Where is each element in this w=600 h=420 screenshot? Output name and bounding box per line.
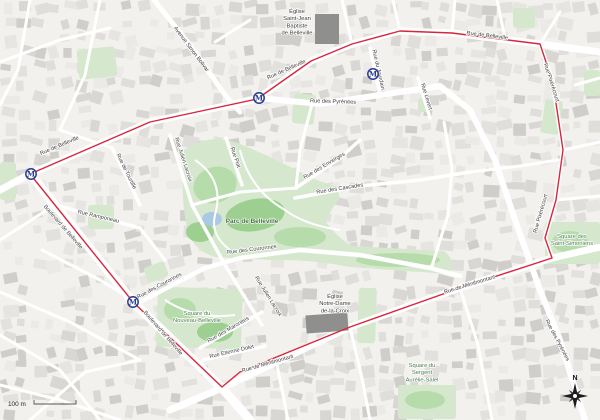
building-block bbox=[153, 210, 169, 222]
building-block bbox=[18, 110, 30, 121]
building-block bbox=[255, 135, 265, 143]
building-block bbox=[484, 242, 492, 250]
building-block bbox=[482, 331, 496, 339]
building-block bbox=[513, 123, 526, 135]
building-block bbox=[140, 60, 152, 73]
building-block bbox=[345, 105, 355, 115]
building-block bbox=[256, 405, 268, 416]
building-block bbox=[275, 285, 286, 293]
building-block bbox=[288, 289, 304, 302]
building-block bbox=[46, 77, 56, 87]
building-block bbox=[108, 332, 118, 342]
building-block bbox=[513, 379, 521, 387]
building-block bbox=[150, 135, 159, 145]
building-block bbox=[170, 94, 183, 104]
building-block bbox=[47, 4, 59, 14]
building-block bbox=[77, 332, 88, 343]
church-building-saint-jean bbox=[315, 14, 339, 44]
building-block bbox=[15, 257, 23, 265]
building-block bbox=[256, 300, 264, 312]
poi-label-line: Église bbox=[327, 293, 343, 300]
poi-label-line: Saint-Simoniens bbox=[551, 241, 593, 247]
building-block bbox=[525, 215, 535, 225]
building-block bbox=[256, 4, 269, 14]
building-block bbox=[421, 330, 429, 338]
building-block bbox=[541, 275, 556, 288]
building-block bbox=[320, 410, 332, 420]
building-block bbox=[365, 152, 378, 165]
building-block bbox=[49, 120, 57, 131]
building-block bbox=[347, 211, 359, 219]
building-block bbox=[406, 152, 416, 162]
building-block bbox=[513, 299, 527, 313]
building-block bbox=[48, 182, 56, 192]
building-block bbox=[394, 335, 404, 347]
building-block bbox=[241, 75, 254, 87]
building-block bbox=[391, 108, 406, 117]
building-block bbox=[439, 363, 448, 373]
building-block bbox=[453, 240, 467, 250]
poi-label-line: Notre-Dame bbox=[319, 301, 351, 307]
building-block bbox=[436, 48, 448, 57]
building-block bbox=[33, 225, 42, 234]
building-block bbox=[15, 335, 26, 343]
building-block bbox=[527, 95, 541, 101]
building-block bbox=[16, 80, 24, 91]
building-block bbox=[20, 135, 33, 143]
building-block bbox=[63, 196, 74, 203]
building-block bbox=[256, 376, 271, 387]
park-pond bbox=[202, 212, 222, 226]
building-block bbox=[390, 75, 405, 87]
map-canvas[interactable]: Rue de BellevilleRue de BellevilleRue de… bbox=[0, 0, 600, 420]
building-block bbox=[455, 47, 464, 55]
building-block bbox=[377, 405, 385, 415]
building-block bbox=[515, 317, 525, 326]
building-block bbox=[555, 62, 566, 76]
building-block bbox=[380, 348, 391, 362]
building-block bbox=[496, 211, 506, 221]
building-block bbox=[365, 216, 379, 227]
building-block bbox=[466, 362, 474, 370]
building-block bbox=[198, 5, 206, 14]
building-block bbox=[424, 213, 434, 220]
building-block bbox=[361, 225, 373, 235]
building-block bbox=[573, 348, 588, 360]
building-block bbox=[167, 77, 180, 85]
building-block bbox=[437, 315, 453, 325]
poi-label-line: Sergent bbox=[412, 370, 433, 376]
building-block bbox=[75, 364, 84, 372]
building-block bbox=[201, 50, 217, 58]
building-block bbox=[569, 90, 584, 104]
building-block bbox=[135, 241, 143, 252]
building-block bbox=[18, 305, 26, 313]
building-block bbox=[483, 361, 492, 369]
building-block bbox=[345, 380, 356, 392]
building-block bbox=[466, 61, 480, 73]
building-block bbox=[587, 31, 600, 43]
building-block bbox=[244, 45, 254, 56]
poi-label-line: de-la-Croix bbox=[321, 308, 349, 314]
poi-label-line: Parc de Belleville bbox=[226, 218, 279, 225]
building-block bbox=[180, 409, 193, 417]
building-block bbox=[362, 168, 377, 179]
building-block bbox=[378, 213, 393, 226]
building-block bbox=[195, 409, 204, 420]
building-block bbox=[590, 376, 600, 389]
building-block bbox=[16, 361, 27, 367]
belleville-quarter-map[interactable]: Rue de BellevilleRue de BellevilleRue de… bbox=[0, 0, 600, 420]
compass-north-label: N bbox=[572, 375, 577, 382]
poi-label-line: de Belleville bbox=[282, 31, 313, 37]
building-block bbox=[122, 257, 134, 270]
building-block bbox=[451, 260, 464, 271]
building-block bbox=[350, 60, 361, 71]
poi-label-line: Église bbox=[289, 8, 305, 15]
metro-station-icon[interactable]: M bbox=[368, 69, 378, 79]
building-block bbox=[455, 63, 467, 74]
building-block bbox=[375, 110, 391, 121]
building-block bbox=[17, 318, 25, 326]
building-block bbox=[195, 31, 204, 38]
building-block bbox=[212, 406, 224, 417]
building-block bbox=[485, 15, 494, 26]
building-block bbox=[304, 136, 322, 151]
building-block bbox=[3, 212, 13, 223]
building-block bbox=[3, 241, 12, 249]
building-block bbox=[589, 121, 600, 133]
building-block bbox=[302, 288, 317, 300]
building-block bbox=[439, 240, 454, 251]
building-block bbox=[560, 91, 571, 99]
building-block bbox=[63, 48, 71, 58]
building-block bbox=[93, 390, 102, 402]
building-block bbox=[78, 287, 92, 298]
building-block bbox=[496, 61, 512, 76]
building-block bbox=[497, 405, 506, 416]
park-label: Parc de Belleville bbox=[226, 218, 279, 225]
building-block bbox=[167, 224, 179, 236]
green-square-area bbox=[513, 8, 535, 28]
building-block bbox=[452, 361, 463, 368]
building-block bbox=[439, 154, 456, 165]
building-block bbox=[150, 107, 164, 116]
building-block bbox=[170, 393, 180, 403]
building-block bbox=[410, 1, 422, 8]
building-block bbox=[436, 301, 449, 312]
building-block bbox=[34, 366, 47, 378]
building-block bbox=[466, 349, 477, 359]
building-block bbox=[46, 410, 54, 417]
building-block bbox=[319, 365, 334, 375]
building-block bbox=[212, 61, 226, 75]
building-block bbox=[590, 363, 600, 371]
building-block bbox=[527, 136, 539, 144]
building-block bbox=[347, 171, 355, 177]
building-block bbox=[498, 319, 506, 326]
building-block bbox=[91, 183, 102, 193]
building-block bbox=[230, 15, 243, 25]
building-block bbox=[376, 225, 388, 237]
park-lawn-patch bbox=[405, 391, 445, 409]
building-block bbox=[392, 363, 405, 376]
building-block bbox=[526, 334, 535, 342]
building-block bbox=[421, 2, 429, 11]
building-block bbox=[379, 365, 389, 374]
building-block bbox=[451, 302, 463, 311]
building-block bbox=[483, 185, 499, 198]
building-block bbox=[405, 47, 417, 60]
building-block bbox=[350, 408, 360, 420]
building-block bbox=[420, 153, 434, 161]
building-block bbox=[420, 165, 434, 176]
building-block bbox=[529, 300, 540, 308]
building-block bbox=[391, 185, 406, 194]
building-block bbox=[16, 19, 31, 28]
building-block bbox=[123, 199, 133, 210]
building-block bbox=[409, 65, 418, 75]
building-block bbox=[543, 3, 553, 10]
building-block bbox=[137, 362, 145, 375]
building-block bbox=[65, 62, 78, 70]
building-block bbox=[3, 409, 15, 420]
building-block bbox=[524, 179, 537, 192]
building-block bbox=[93, 170, 103, 180]
building-block bbox=[346, 4, 356, 16]
building-block bbox=[77, 168, 90, 179]
building-block bbox=[422, 51, 432, 61]
building-block bbox=[166, 180, 182, 190]
green-square-area bbox=[77, 46, 118, 80]
building-block bbox=[345, 78, 353, 89]
building-block bbox=[123, 138, 131, 145]
building-block bbox=[107, 318, 118, 330]
building-block bbox=[151, 167, 159, 178]
building-block bbox=[122, 21, 132, 28]
poi-label-line: Nouveau-Belleville bbox=[173, 318, 221, 324]
building-block bbox=[275, 46, 284, 59]
building-block bbox=[150, 19, 159, 28]
building-block bbox=[573, 121, 580, 128]
metro-letter: M bbox=[129, 298, 137, 307]
building-block bbox=[151, 394, 159, 401]
building-block bbox=[167, 32, 175, 39]
building-block bbox=[124, 335, 135, 347]
building-block bbox=[139, 76, 151, 85]
building-block bbox=[495, 390, 506, 402]
building-block bbox=[2, 139, 18, 148]
metro-station-icon[interactable]: M bbox=[26, 169, 36, 179]
building-block bbox=[258, 335, 267, 343]
building-block bbox=[465, 228, 477, 241]
building-block bbox=[246, 139, 255, 147]
building-block bbox=[200, 17, 210, 30]
building-block bbox=[425, 350, 439, 361]
building-block bbox=[466, 393, 476, 400]
building-block bbox=[572, 1, 585, 13]
building-block bbox=[91, 304, 106, 318]
building-block bbox=[574, 320, 583, 328]
building-block bbox=[271, 274, 281, 286]
building-block bbox=[392, 47, 401, 56]
building-block bbox=[106, 196, 114, 205]
building-block bbox=[409, 135, 425, 150]
building-block bbox=[34, 120, 46, 130]
metro-station-icon[interactable]: M bbox=[254, 93, 264, 103]
poi-label-line: Square du bbox=[409, 363, 436, 369]
building-block bbox=[45, 228, 61, 241]
building-block bbox=[346, 230, 357, 242]
building-block bbox=[334, 347, 343, 358]
building-block bbox=[542, 182, 555, 195]
building-block bbox=[186, 4, 201, 17]
building-block bbox=[451, 332, 461, 340]
building-block bbox=[361, 108, 371, 116]
building-block bbox=[316, 380, 331, 393]
building-block bbox=[16, 151, 27, 162]
building-block bbox=[287, 140, 299, 150]
building-block bbox=[499, 379, 514, 392]
poi-label-line: Baptiste bbox=[287, 23, 308, 29]
poi-label-line: Square du bbox=[184, 311, 211, 317]
building-block bbox=[524, 348, 541, 363]
building-block bbox=[409, 212, 424, 220]
building-block bbox=[3, 2, 13, 14]
building-block bbox=[500, 2, 513, 14]
building-block bbox=[170, 245, 181, 256]
building-block bbox=[451, 122, 466, 136]
building-block bbox=[395, 317, 402, 323]
building-block bbox=[392, 137, 408, 148]
building-block bbox=[304, 270, 318, 284]
building-block bbox=[376, 19, 389, 27]
building-block bbox=[3, 304, 19, 318]
building-block bbox=[411, 229, 420, 239]
poi-label-line: Aurélie-Salel bbox=[406, 377, 439, 383]
building-block bbox=[229, 1, 243, 12]
building-block bbox=[258, 59, 272, 72]
building-block bbox=[378, 332, 386, 342]
building-block bbox=[496, 90, 509, 101]
building-block bbox=[498, 366, 508, 374]
building-block bbox=[4, 35, 17, 49]
metro-letter: M bbox=[255, 94, 263, 103]
building-block bbox=[300, 405, 308, 412]
building-block bbox=[515, 410, 526, 420]
building-block bbox=[528, 364, 541, 378]
building-block bbox=[557, 274, 566, 285]
scale-bar-label: 100 m bbox=[8, 401, 26, 408]
building-block bbox=[260, 34, 275, 47]
building-block bbox=[420, 62, 428, 68]
building-block bbox=[4, 96, 20, 105]
building-block bbox=[106, 242, 115, 253]
building-block bbox=[584, 305, 595, 316]
building-block bbox=[482, 5, 497, 15]
building-block bbox=[361, 120, 373, 130]
building-block bbox=[270, 409, 285, 420]
building-block bbox=[393, 270, 407, 281]
building-block bbox=[330, 378, 344, 385]
building-block bbox=[350, 125, 361, 134]
building-block bbox=[393, 346, 406, 353]
building-block bbox=[301, 80, 313, 88]
building-block bbox=[31, 320, 40, 328]
metro-letter: M bbox=[27, 170, 35, 179]
building-block bbox=[315, 3, 329, 14]
building-block bbox=[109, 185, 119, 196]
building-block bbox=[466, 155, 475, 164]
building-block bbox=[453, 315, 463, 328]
building-block bbox=[512, 170, 523, 182]
building-block bbox=[17, 183, 30, 196]
building-block bbox=[525, 392, 541, 405]
building-block bbox=[543, 364, 557, 378]
building-block bbox=[405, 126, 417, 134]
building-block bbox=[510, 182, 525, 190]
building-block bbox=[275, 0, 287, 11]
building-block bbox=[513, 95, 525, 105]
building-block bbox=[333, 405, 346, 418]
building-block bbox=[211, 120, 219, 128]
building-block bbox=[439, 332, 451, 343]
poi-label-line: Saint-Jean bbox=[283, 16, 311, 22]
building-block bbox=[511, 336, 524, 346]
building-block bbox=[105, 378, 115, 387]
building-block bbox=[305, 392, 314, 403]
building-block bbox=[137, 346, 149, 355]
building-block bbox=[526, 287, 536, 299]
park-lawn-patch bbox=[274, 227, 326, 247]
building-block bbox=[526, 379, 535, 390]
building-block bbox=[260, 16, 275, 28]
building-block bbox=[318, 121, 332, 131]
building-block bbox=[62, 410, 72, 420]
building-block bbox=[484, 285, 496, 293]
building-block bbox=[573, 360, 583, 371]
building-block bbox=[6, 123, 17, 136]
metro-letter: M bbox=[369, 70, 377, 79]
building-block bbox=[571, 270, 584, 278]
building-block bbox=[285, 153, 298, 162]
poi-label-line: Square des bbox=[557, 234, 587, 240]
building-block bbox=[75, 302, 89, 312]
metro-station-icon[interactable]: M bbox=[128, 297, 138, 307]
building-block bbox=[395, 126, 403, 138]
building-block bbox=[496, 136, 504, 147]
building-block bbox=[211, 19, 221, 29]
